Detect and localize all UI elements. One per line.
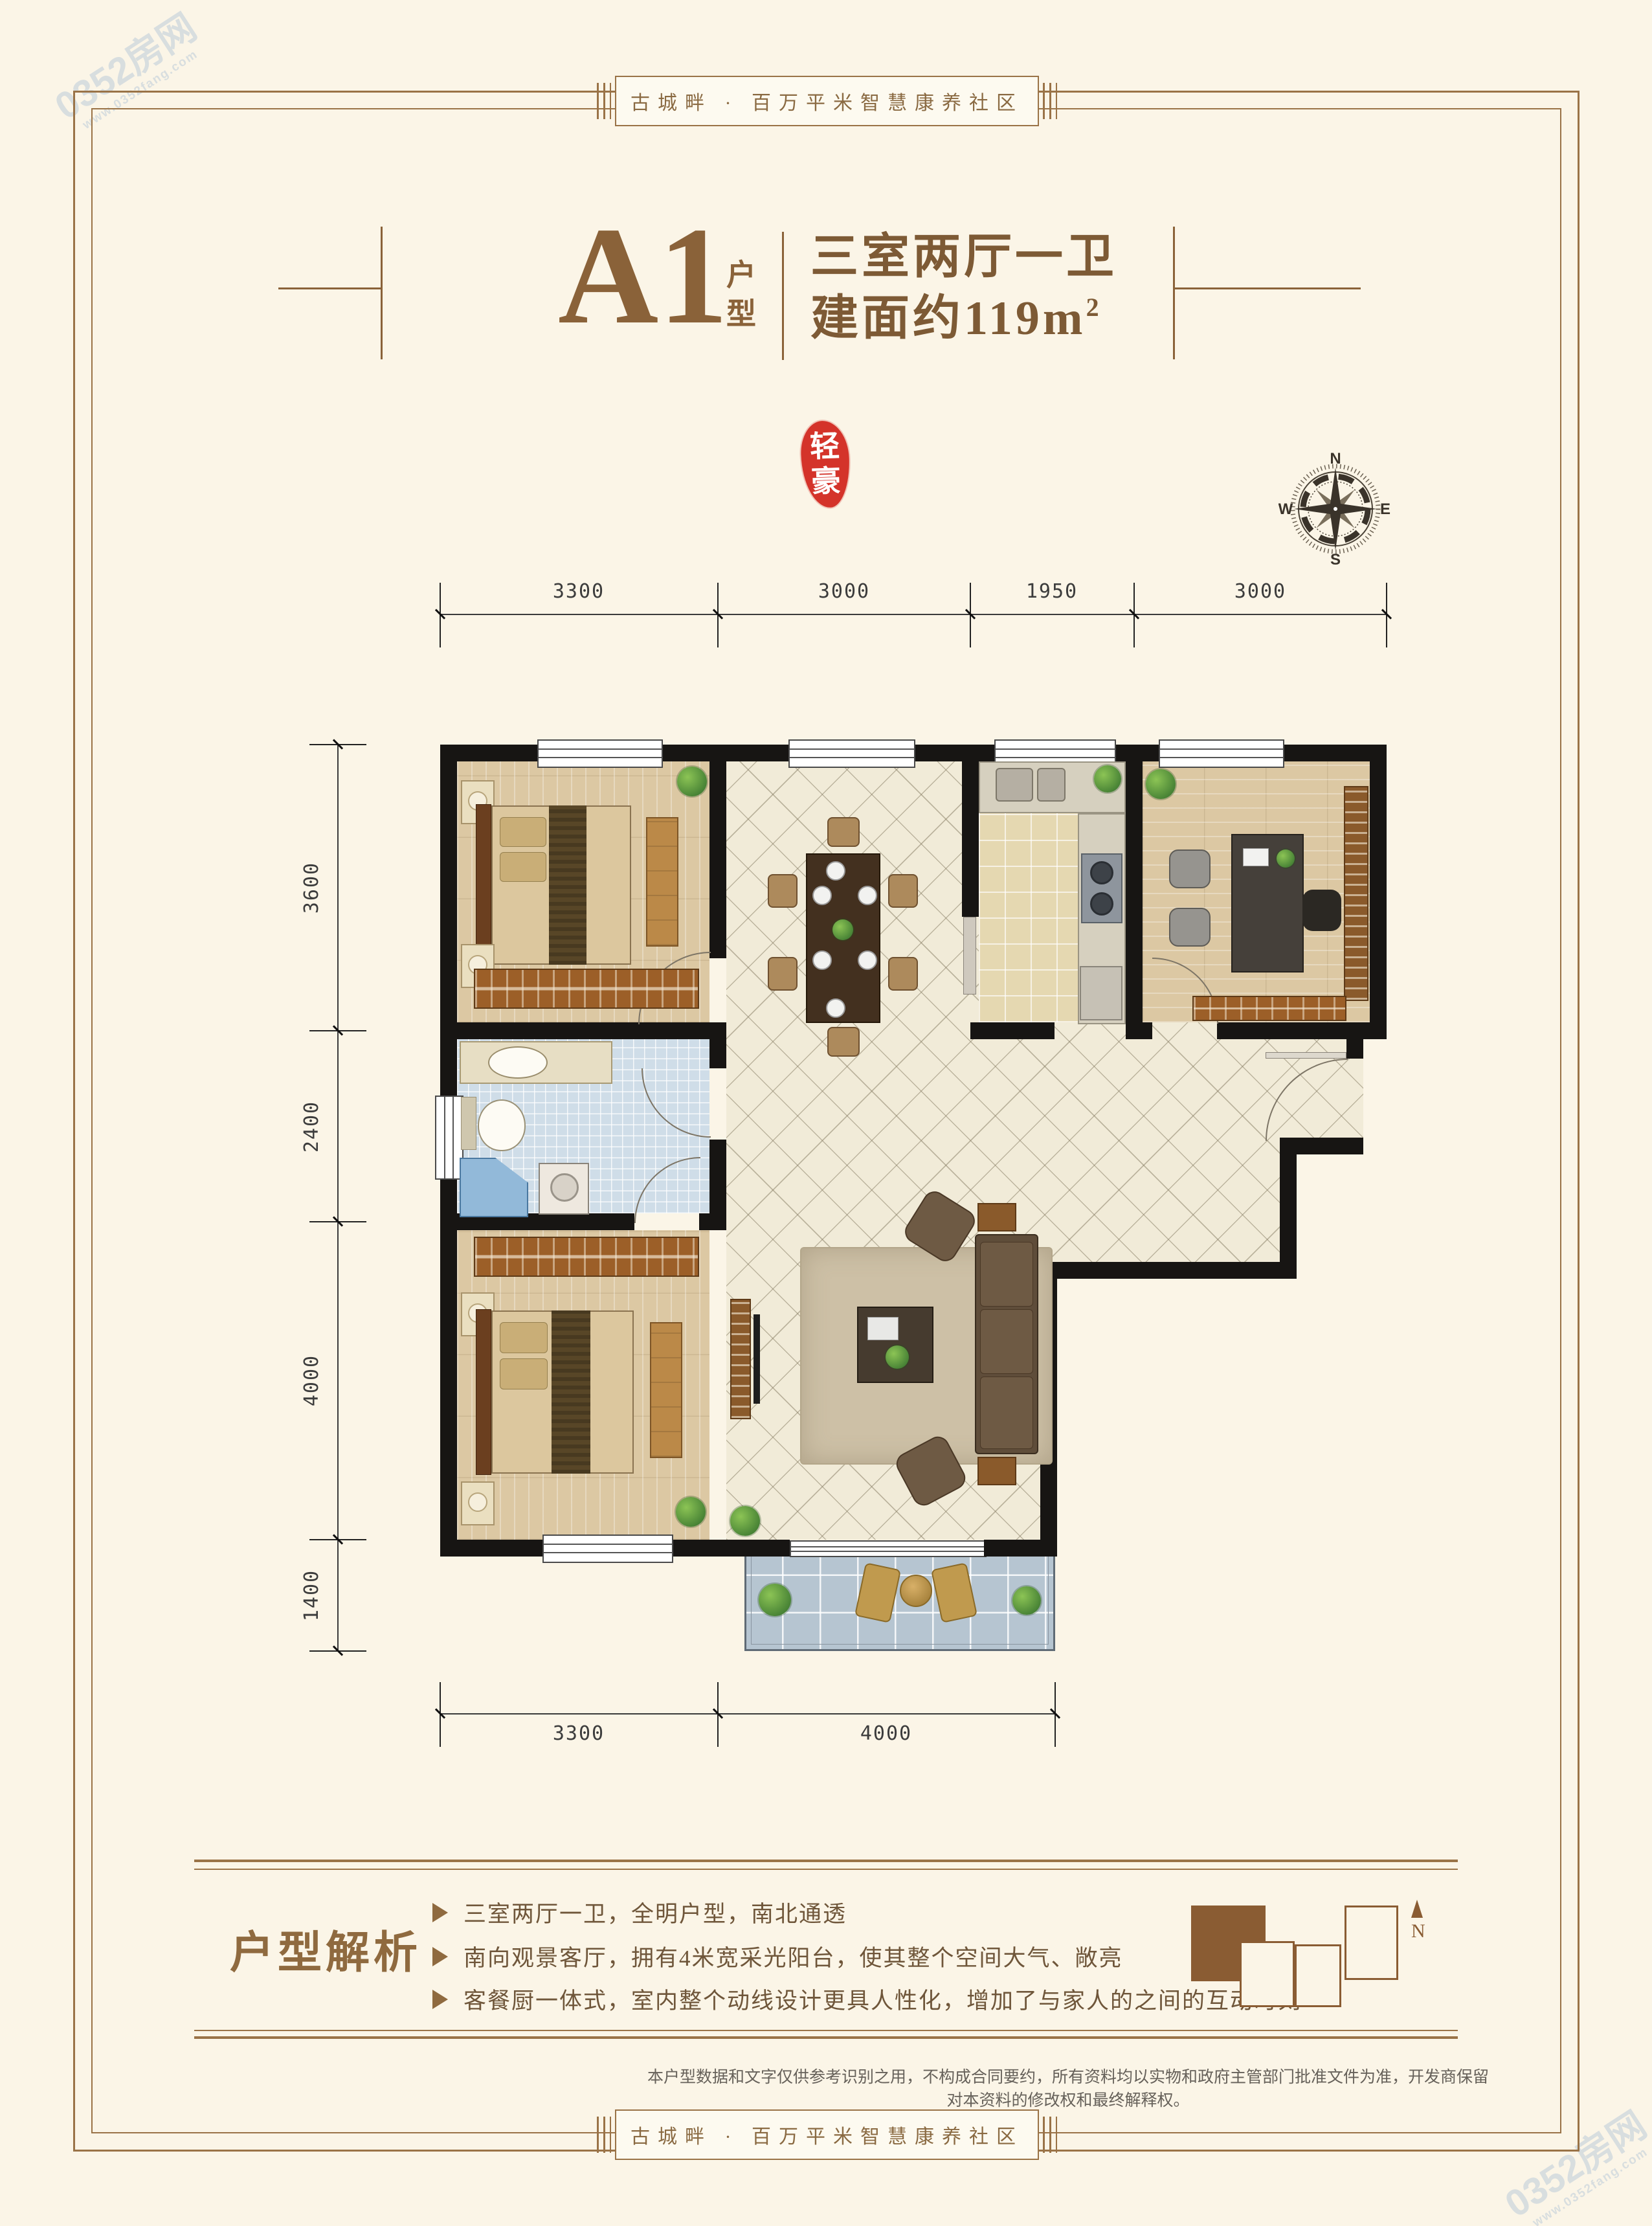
burner xyxy=(1090,892,1113,916)
bedroom-bench xyxy=(646,817,678,947)
entry-door-leaf xyxy=(1266,1052,1346,1059)
compass-n: N xyxy=(1330,452,1341,467)
analysis-title: 户型解析 xyxy=(230,1917,421,1981)
toilet xyxy=(478,1099,526,1151)
plate xyxy=(812,886,832,905)
fridge xyxy=(1080,966,1122,1020)
bed-headboard xyxy=(476,1309,491,1475)
banner-ornament-icon xyxy=(1043,83,1057,119)
title-divider xyxy=(782,232,784,360)
dim-label: 3000 xyxy=(799,580,889,603)
dining-chair xyxy=(888,874,918,908)
key-plan-unit xyxy=(1240,1941,1295,2007)
dining-chair xyxy=(768,957,798,991)
wall xyxy=(440,1022,726,1039)
bedroom-bench xyxy=(650,1322,682,1458)
wall xyxy=(699,1213,726,1230)
top-banner-text: 古城畔 · 百万平米智慧康养社区 xyxy=(631,87,1023,115)
plate xyxy=(858,886,877,905)
side-table xyxy=(977,1457,1016,1485)
window xyxy=(542,1535,673,1563)
title-bracket-right-bar xyxy=(1173,227,1175,359)
unit-code: A1 xyxy=(558,206,728,345)
wall xyxy=(1040,1262,1297,1279)
plant xyxy=(730,1506,760,1536)
title-bracket-left-bar xyxy=(381,227,383,359)
wall xyxy=(709,1039,726,1068)
dim-label: 1400 xyxy=(300,1553,324,1637)
area-superscript: 2 xyxy=(1086,293,1102,322)
kitchen-sink xyxy=(1037,768,1066,802)
dim-label: 3300 xyxy=(533,1722,624,1746)
plant xyxy=(676,1497,706,1527)
table-centerpiece xyxy=(832,919,853,940)
rule-bottom-thick xyxy=(194,2036,1458,2039)
washer-drum xyxy=(550,1173,579,1202)
bullet-arrow-icon xyxy=(432,1903,448,1922)
window xyxy=(537,739,663,768)
sofa-cushion xyxy=(980,1377,1033,1449)
cabinet xyxy=(1192,996,1346,1021)
poster-page: 0352房网 www.0352fang.com 0352房网 www.0352f… xyxy=(0,0,1652,2226)
sofa-cushion xyxy=(980,1242,1033,1307)
analysis-bullet: 三室两厅一卫，全明户型，南北通透 xyxy=(432,1896,847,1929)
dining-chair xyxy=(888,957,918,991)
office-chair xyxy=(1302,890,1341,931)
wall xyxy=(1126,1022,1152,1039)
rule-top-thick xyxy=(194,1860,1458,1862)
top-banner: 古城畔 · 百万平米智慧康养社区 xyxy=(615,76,1039,126)
pillow xyxy=(500,852,546,882)
rule-bottom-thin xyxy=(194,2030,1458,2031)
dim-label: 3000 xyxy=(1215,580,1306,603)
wall xyxy=(970,1022,1055,1039)
bathroom-sink xyxy=(488,1046,548,1079)
bed-headboard xyxy=(476,804,491,966)
outside-area xyxy=(1057,1279,1368,1544)
key-plan-unit xyxy=(1295,1944,1341,2007)
bullet-text: 客餐厨一体式，室内整个动线设计更具人性化，增加了与家人的之间的互动时刻 xyxy=(463,1983,1302,2016)
plant xyxy=(677,767,707,796)
compass-w: W xyxy=(1278,500,1293,518)
plant xyxy=(759,1584,791,1616)
title-bracket-right-line xyxy=(1173,287,1361,289)
bottom-banner-text: 古城畔 · 百万平米智慧康养社区 xyxy=(631,2120,1023,2149)
kitchen-sliding-door xyxy=(963,917,976,995)
plant xyxy=(1012,1586,1041,1615)
window xyxy=(788,739,915,768)
table-plant xyxy=(886,1345,909,1369)
window xyxy=(1159,739,1284,768)
area-label: 建面约119m2 xyxy=(810,295,1102,343)
guest-chair xyxy=(1169,849,1211,888)
dim-label: 4000 xyxy=(300,1338,324,1422)
pillow xyxy=(500,817,546,847)
north-arrow-icon xyxy=(1411,1900,1423,1918)
plant xyxy=(1094,765,1121,793)
bullet-arrow-icon xyxy=(432,1990,448,2009)
plate xyxy=(826,861,845,881)
toilet-tank xyxy=(461,1097,476,1150)
rule-top-thin xyxy=(194,1869,1458,1870)
kitchen-sink xyxy=(996,768,1033,802)
dim-label: 4000 xyxy=(841,1722,932,1746)
dining-chair xyxy=(768,874,798,908)
unit-type-label: 户型 xyxy=(717,259,760,356)
burner xyxy=(1090,861,1113,884)
seal-char-2: 豪 xyxy=(810,464,842,500)
compass-rose-icon: N E S W xyxy=(1278,452,1392,566)
dining-chair xyxy=(827,1027,860,1057)
analysis-bullet: 客餐厨一体式，室内整个动线设计更具人性化，增加了与家人的之间的互动时刻 xyxy=(432,1983,1302,2016)
balcony-table xyxy=(900,1575,932,1607)
room-config-label: 三室两厅一卫 xyxy=(810,233,1117,281)
wall xyxy=(984,1540,1057,1557)
title-bracket-left-line xyxy=(278,287,382,289)
wall xyxy=(1280,1138,1297,1279)
wall xyxy=(1370,745,1387,1039)
wall xyxy=(1217,1022,1387,1039)
wardrobe xyxy=(474,969,699,1009)
balcony-sliding-door xyxy=(790,1540,987,1557)
bed-runner xyxy=(549,805,586,965)
wall xyxy=(718,1540,790,1557)
pillow xyxy=(500,1358,548,1389)
wall xyxy=(709,745,726,958)
plate xyxy=(858,950,877,970)
banner-ornament-icon xyxy=(597,83,611,119)
sofa-cushion xyxy=(980,1309,1033,1374)
side-table xyxy=(977,1203,1016,1231)
banner-ornament-icon xyxy=(1043,2117,1057,2153)
compass-s: S xyxy=(1330,551,1341,566)
wall xyxy=(1126,745,1143,1039)
desk-plant xyxy=(1277,849,1295,868)
plate xyxy=(812,950,832,970)
floor-plan xyxy=(440,745,1387,1677)
dining-chair xyxy=(827,817,860,847)
papers xyxy=(1243,848,1269,866)
dim-label: 2400 xyxy=(300,1085,324,1169)
bullet-arrow-icon xyxy=(432,1947,448,1966)
tv xyxy=(753,1314,760,1404)
tray xyxy=(867,1317,899,1340)
balcony-railing-inner xyxy=(751,1557,1049,1645)
wall xyxy=(709,1140,726,1222)
compass-e: E xyxy=(1380,500,1390,518)
nightstand xyxy=(461,1481,495,1525)
bed-runner xyxy=(552,1310,590,1474)
seal-char-1: 轻 xyxy=(809,429,840,465)
dim-label: 3300 xyxy=(533,580,624,603)
window xyxy=(435,1096,463,1180)
wardrobe xyxy=(474,1237,699,1277)
analysis-bullet: 南向观景客厅，拥有4米宽采光阳台，使其整个空间大气、敞亮 xyxy=(432,1940,1123,1973)
wall xyxy=(962,761,979,917)
bottom-banner: 古城畔 · 百万平米智慧康养社区 xyxy=(615,2109,1039,2160)
guest-chair xyxy=(1169,908,1211,947)
key-plan-unit xyxy=(1345,1906,1398,1980)
pillow xyxy=(500,1322,548,1353)
dim-label: 1950 xyxy=(1007,580,1097,603)
bullet-text: 三室两厅一卫，全明户型，南北通透 xyxy=(463,1896,847,1929)
wall xyxy=(1346,1039,1363,1059)
plate xyxy=(826,998,845,1018)
disclaimer: 本户型数据和文字仅供参考识别之用，不构成合同要约，所有资料均以实物和政府主管部门… xyxy=(641,2064,1495,2111)
dim-label: 3600 xyxy=(300,846,324,930)
bullet-text: 南向观景客厅，拥有4米宽采光阳台，使其整个空间大气、敞亮 xyxy=(463,1940,1123,1973)
bookshelf xyxy=(1344,786,1368,1001)
tv-cabinet xyxy=(730,1299,751,1419)
plant xyxy=(1146,769,1176,799)
banner-ornament-icon xyxy=(597,2117,611,2153)
north-label: N xyxy=(1411,1920,1425,1942)
